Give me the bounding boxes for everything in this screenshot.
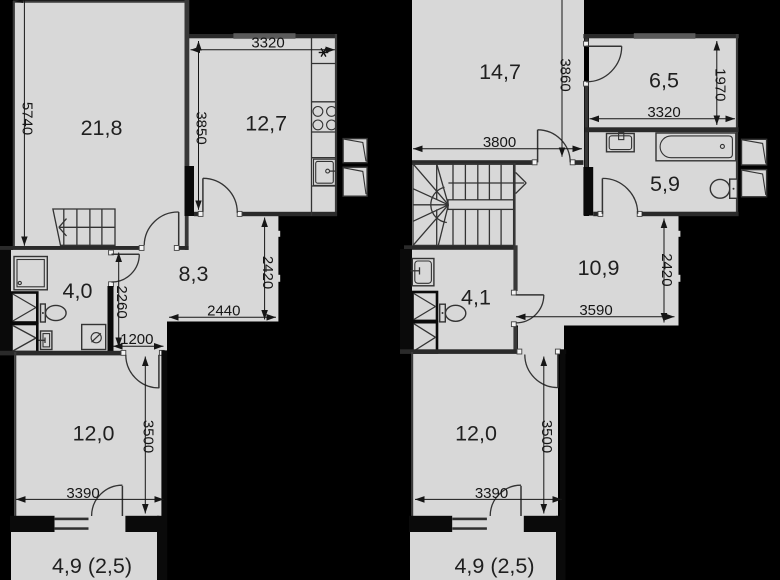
svg-text:10,9: 10,9 <box>578 256 620 280</box>
svg-text:4,9 (2,5): 4,9 (2,5) <box>52 554 132 578</box>
svg-text:2420: 2420 <box>259 256 276 289</box>
svg-text:3590: 3590 <box>579 302 612 319</box>
svg-text:3320: 3320 <box>251 35 284 52</box>
svg-text:8,3: 8,3 <box>179 262 209 286</box>
svg-text:3390: 3390 <box>475 485 508 502</box>
svg-text:21,8: 21,8 <box>81 116 123 140</box>
svg-text:2420: 2420 <box>658 253 675 286</box>
svg-text:3860: 3860 <box>557 58 574 91</box>
svg-text:2440: 2440 <box>207 303 240 320</box>
svg-text:6,5: 6,5 <box>649 69 679 93</box>
svg-text:4,1: 4,1 <box>461 285 491 309</box>
svg-text:3850: 3850 <box>193 111 210 144</box>
svg-text:3500: 3500 <box>140 420 157 453</box>
svg-text:3800: 3800 <box>483 134 516 151</box>
svg-text:2260: 2260 <box>113 285 130 318</box>
svg-text:5740: 5740 <box>18 102 35 135</box>
svg-text:3320: 3320 <box>647 104 680 121</box>
svg-text:12,0: 12,0 <box>73 421 115 445</box>
svg-text:1200: 1200 <box>120 331 153 348</box>
svg-text:12,7: 12,7 <box>245 111 287 135</box>
svg-text:4,0: 4,0 <box>63 279 93 303</box>
svg-text:12,0: 12,0 <box>455 421 497 445</box>
svg-text:4,9 (2,5): 4,9 (2,5) <box>454 554 534 578</box>
svg-text:1970: 1970 <box>712 68 729 101</box>
svg-text:3390: 3390 <box>66 485 99 502</box>
svg-text:14,7: 14,7 <box>479 60 521 84</box>
svg-text:5,9: 5,9 <box>650 172 680 196</box>
svg-text:3500: 3500 <box>538 420 555 453</box>
